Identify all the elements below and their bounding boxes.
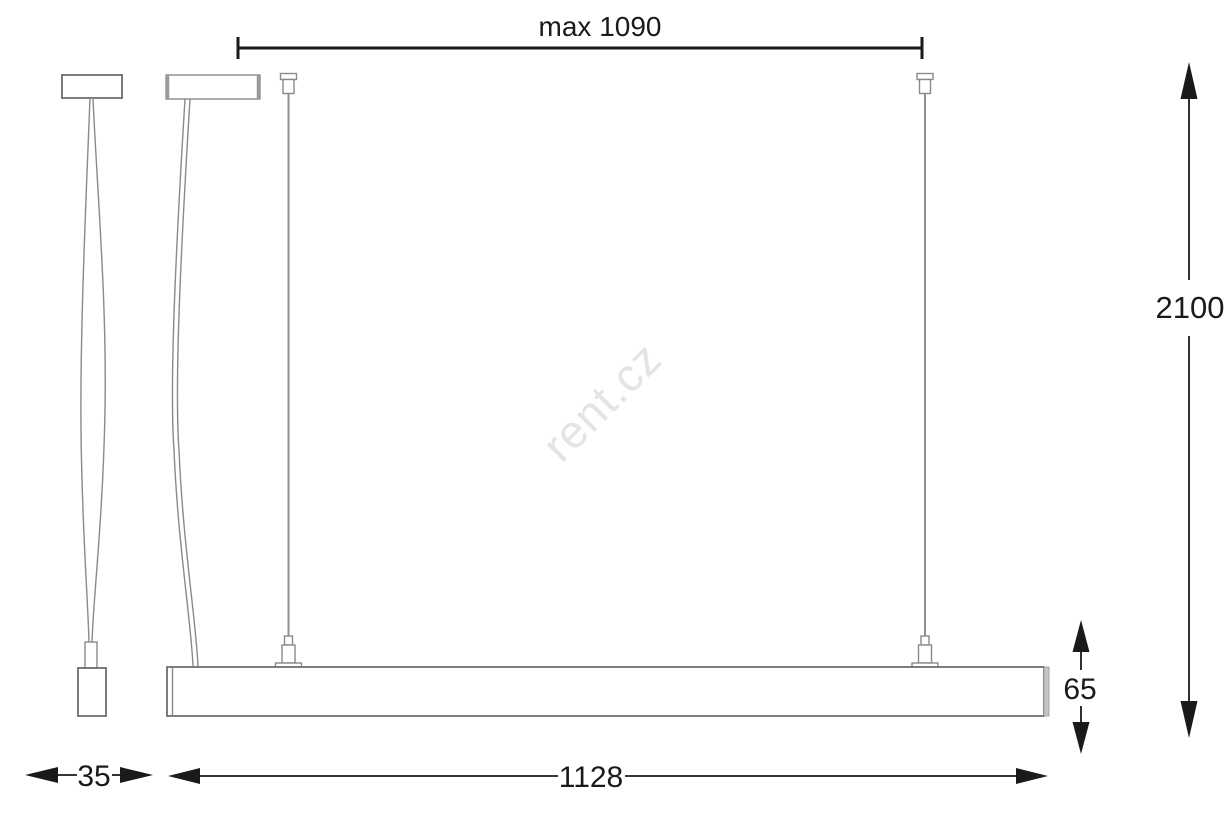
suspension-right <box>912 74 938 668</box>
side-power-cable-strand-2 <box>92 98 105 643</box>
dimension-max-suspension-width: max 1090 <box>238 11 922 59</box>
dimension-profile-width: 35 <box>25 760 153 793</box>
dim-1128-arrow-left <box>168 768 200 784</box>
side-power-cable-strand-1 <box>81 98 90 643</box>
dim-1128-label: 1128 <box>559 761 624 794</box>
dimension-bar-height: 65 <box>1063 620 1096 754</box>
dim-1128-arrow-right <box>1016 768 1048 784</box>
side-bar-end-cap <box>78 668 106 716</box>
suspension-left-ceiling-cap <box>281 74 297 80</box>
dimension-overall-drop: 2100 <box>1156 62 1225 738</box>
side-cable-neck <box>85 642 97 668</box>
suspension-right-ceiling-cap <box>917 74 933 80</box>
pendant-light-dimension-drawing: rent.cz <box>0 0 1230 814</box>
light-bar <box>167 667 1044 716</box>
dim-35-label: 35 <box>77 760 110 793</box>
side-ceiling-canopy <box>62 75 122 98</box>
dim-65-arrow-up <box>1073 620 1090 652</box>
dim-2100-label: 2100 <box>1156 290 1225 325</box>
suspension-right-grip <box>919 645 932 663</box>
ceiling-canopy <box>166 75 260 99</box>
dim-35-arrow-right <box>120 767 153 783</box>
suspension-right-connector <box>921 636 929 645</box>
side-profile-view <box>62 75 122 716</box>
watermark: rent.cz <box>532 332 671 471</box>
dim-65-label: 65 <box>1063 673 1096 706</box>
dim-2100-arrow-down <box>1181 701 1198 738</box>
dim-65-arrow-down <box>1073 722 1090 754</box>
dim-2100-arrow-up <box>1181 62 1198 99</box>
diagram-canvas: rent.cz <box>0 0 1230 814</box>
dim-max1090-label: max 1090 <box>539 11 662 42</box>
light-bar-right-end-cap <box>1044 667 1049 716</box>
suspension-right-ceiling-body <box>920 80 931 94</box>
suspension-left-grip <box>282 645 295 663</box>
suspension-left <box>276 74 302 668</box>
dim-35-arrow-left <box>25 767 58 783</box>
dimension-bar-length: 1128 <box>168 761 1048 794</box>
suspension-left-ceiling-body <box>283 80 294 94</box>
suspension-left-connector <box>285 636 293 645</box>
